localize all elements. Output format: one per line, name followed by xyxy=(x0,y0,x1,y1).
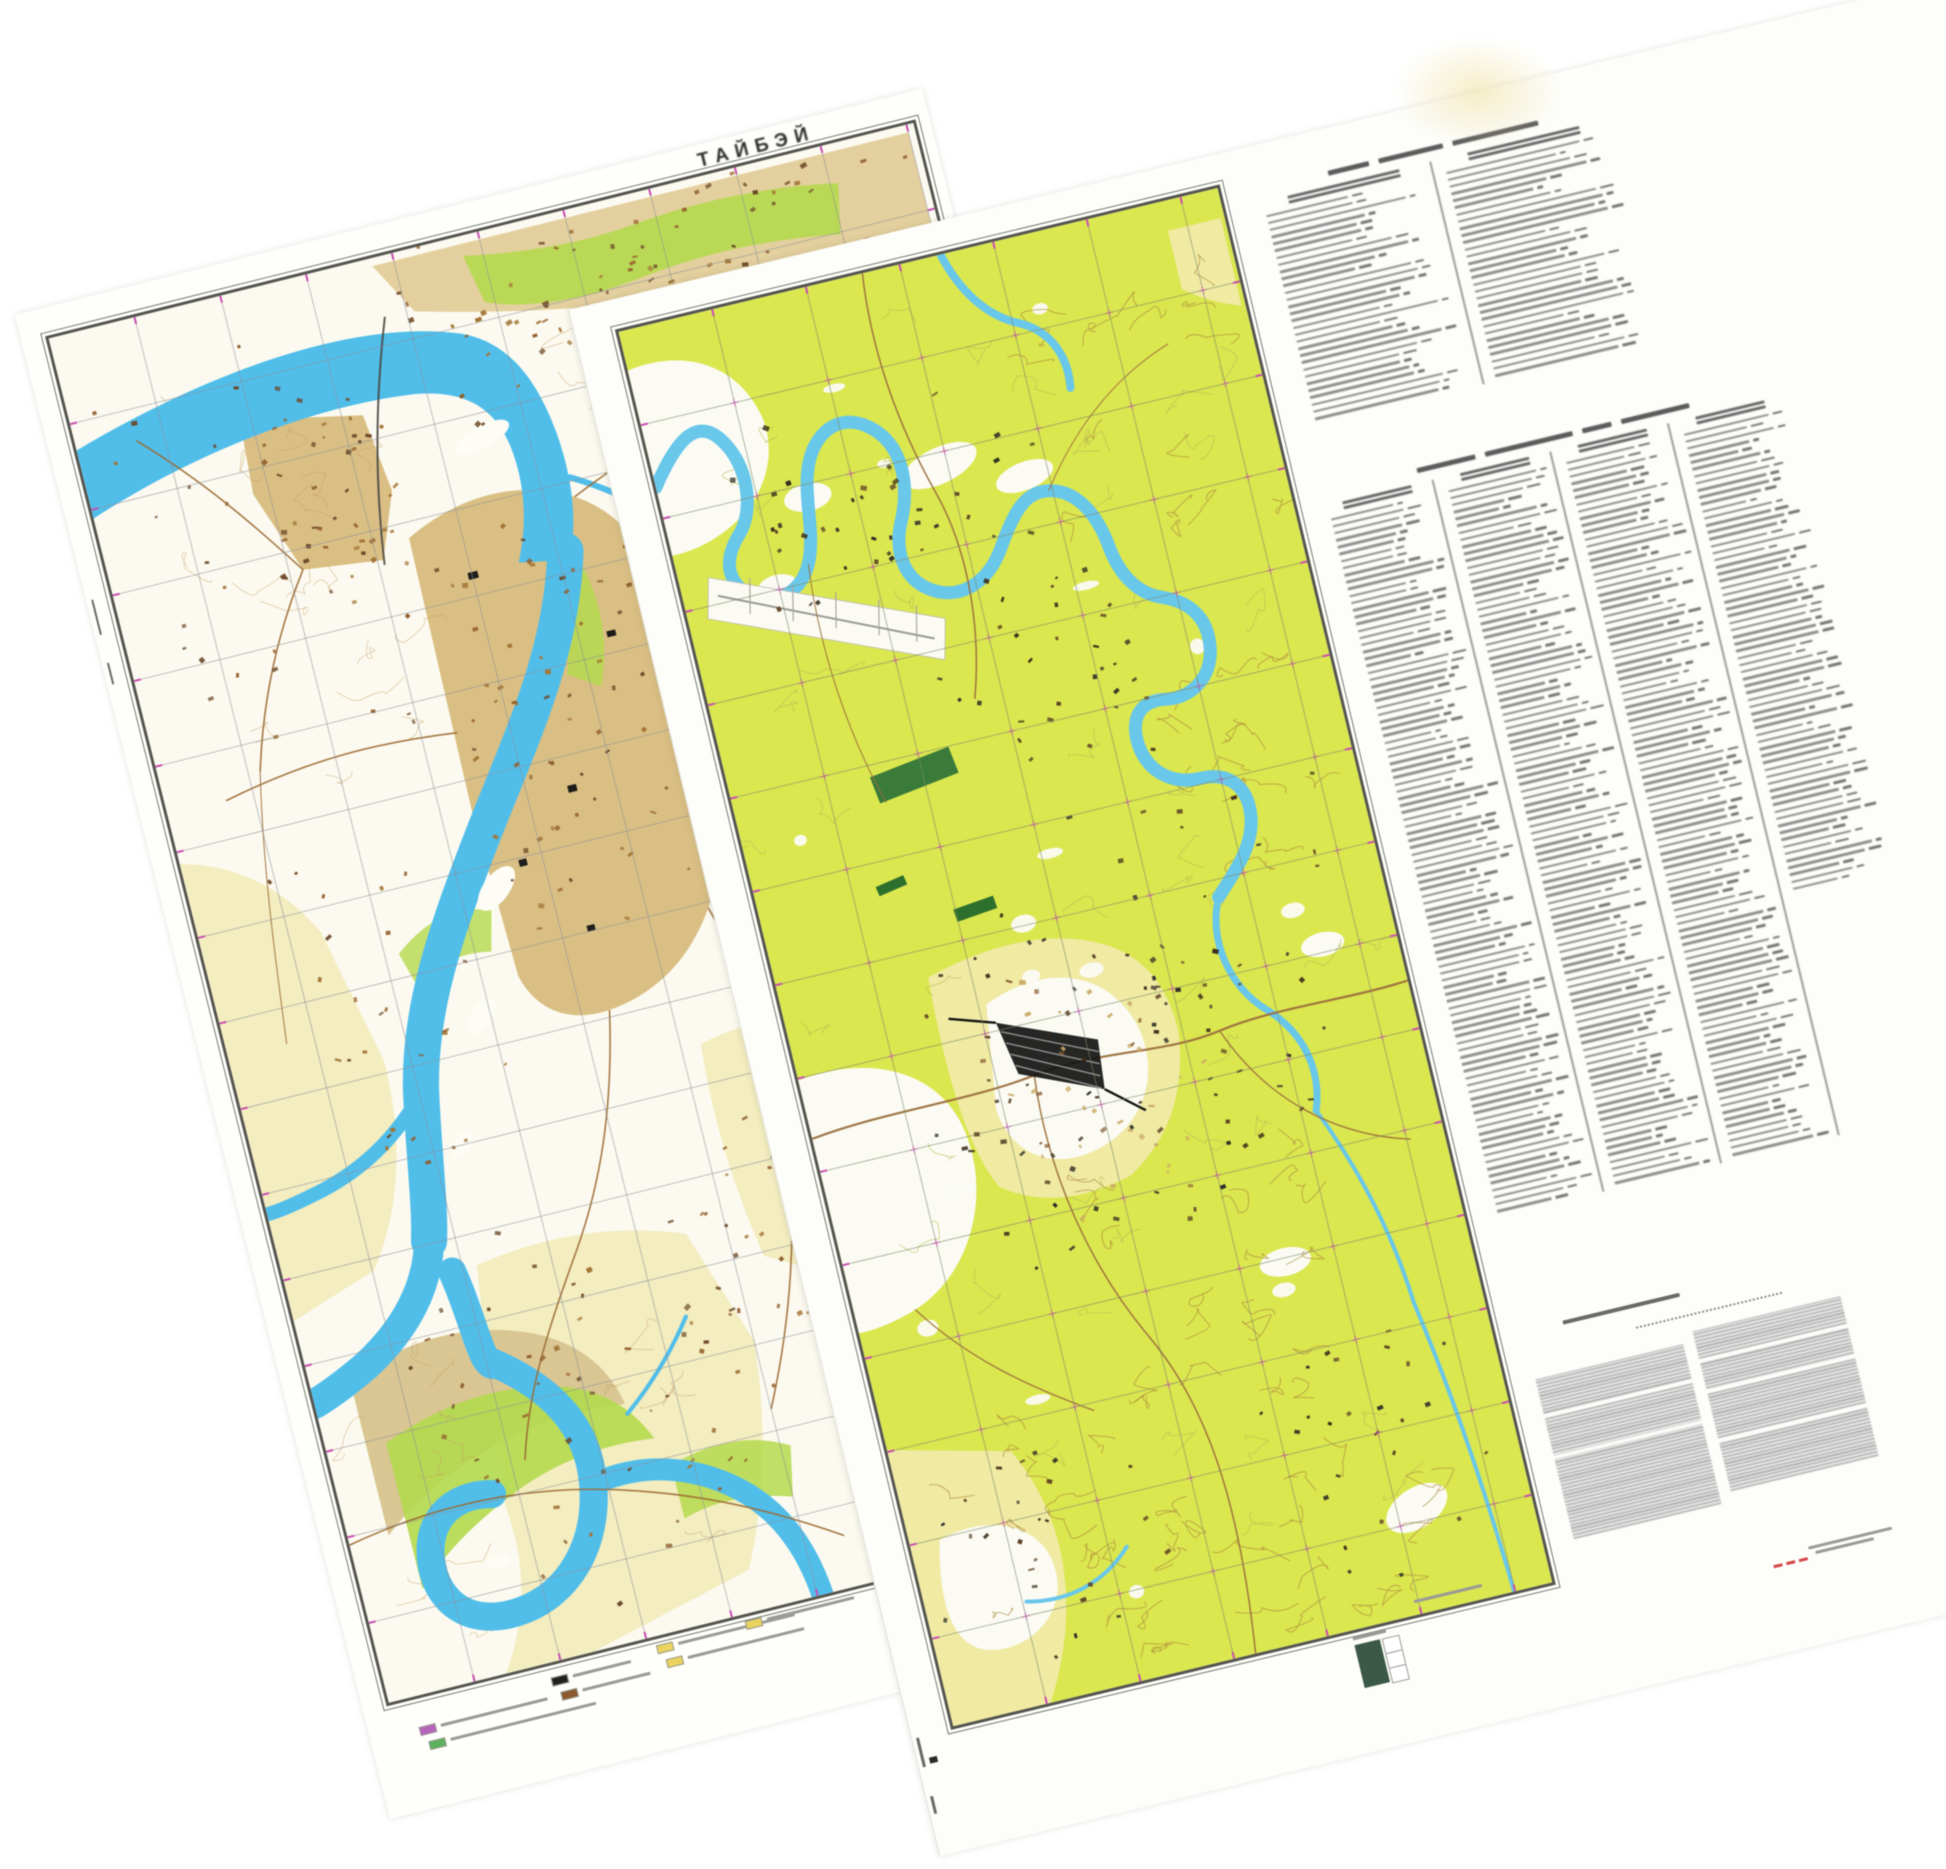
legend-chip xyxy=(551,1674,570,1687)
legend-chip xyxy=(419,1723,438,1736)
scanned-maps-scene: ТАЙБЭЙ xyxy=(0,0,1946,1869)
margin-text-mark xyxy=(91,600,102,635)
legend-chip-label xyxy=(687,1627,804,1659)
scanned-map-viewport: ТАЙБЭЙ xyxy=(0,0,1946,1869)
legend-chip-label xyxy=(572,1660,631,1677)
margin-text-mark xyxy=(930,1796,937,1814)
paper-stain xyxy=(1392,36,1562,146)
legend-chip xyxy=(656,1641,675,1654)
notes-paragraph xyxy=(1535,1344,1721,1539)
legend-chip-label xyxy=(450,1702,596,1741)
legend-chip xyxy=(666,1655,685,1668)
legend-chip xyxy=(560,1688,579,1701)
red-dash-legend-item xyxy=(1773,1557,1808,1568)
red-legend-label xyxy=(1808,1527,1892,1550)
legend-chip xyxy=(428,1737,447,1750)
legend-chip-label xyxy=(440,1697,547,1726)
legend-chip-label xyxy=(582,1672,651,1691)
notes-paragraph xyxy=(1693,1296,1879,1491)
margin-stamp-mark xyxy=(929,1756,938,1764)
margin-text-mark xyxy=(916,1738,926,1768)
margin-text-mark xyxy=(107,663,114,685)
index-table-objects xyxy=(1259,104,1662,424)
